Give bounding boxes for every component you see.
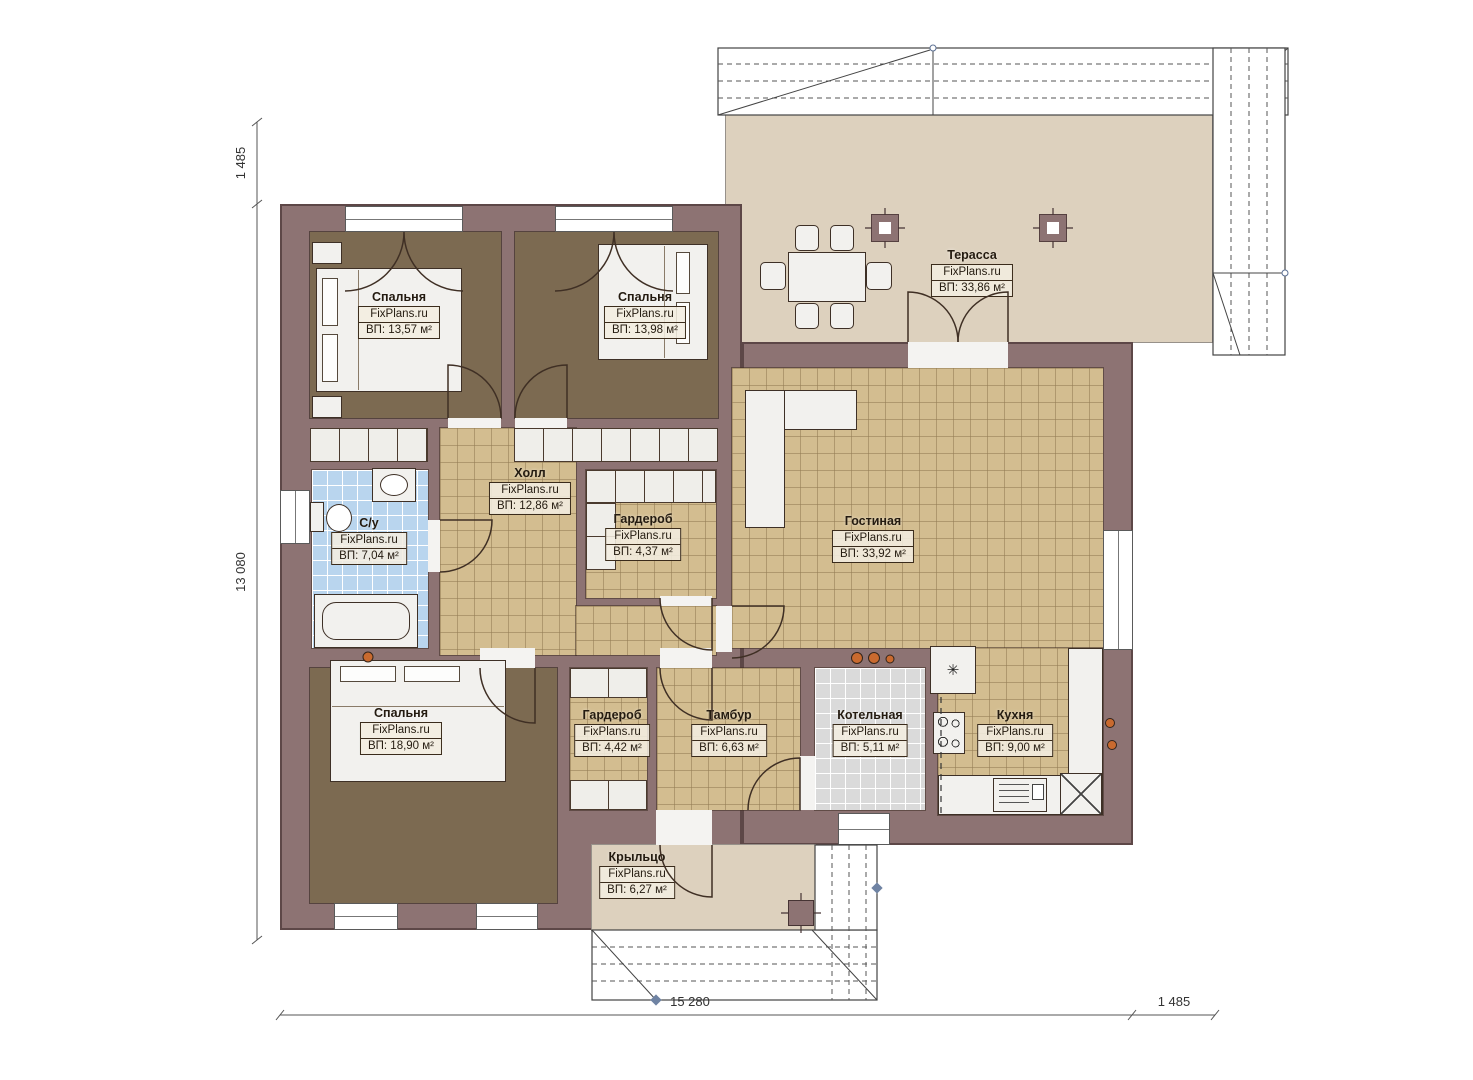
brand-label: FixPlans.ru [361, 723, 441, 739]
brand-label: FixPlans.ru [490, 483, 570, 499]
room-area: ВП: 18,90 м² [361, 739, 441, 754]
chair [795, 303, 819, 329]
roof-node-marker [871, 882, 882, 893]
bed-pillow [676, 252, 690, 294]
window-bedroom-2 [555, 206, 673, 232]
room-info-box: FixPlans.ru ВП: 18,90 м² [360, 722, 442, 755]
room-label-bathroom: С/у FixPlans.ru ВП: 7,04 м² [331, 516, 407, 565]
room-area: ВП: 7,04 м² [332, 549, 406, 564]
closet-bedroom-2 [514, 428, 718, 462]
room-area: ВП: 33,86 м² [932, 281, 1012, 296]
brand-label: FixPlans.ru [332, 533, 406, 549]
brand-label: FixPlans.ru [932, 265, 1012, 281]
window-bathroom [280, 490, 310, 544]
room-label-hall: Холл FixPlans.ru ВП: 12,86 м² [489, 466, 571, 515]
door-opening-wardrobe-1 [660, 596, 712, 606]
room-label-wardrobe-1: Гардероб FixPlans.ru ВП: 4,37 м² [605, 512, 681, 561]
room-name: Спальня [360, 706, 442, 720]
brand-label: FixPlans.ru [575, 725, 649, 741]
roof-node-marker [650, 994, 661, 1005]
room-name: Гардероб [605, 512, 681, 526]
dining-table [788, 252, 866, 302]
room-label-terrace: Терасса FixPlans.ru ВП: 33,86 м² [931, 248, 1013, 297]
brand-label: FixPlans.ru [834, 725, 907, 741]
bed-pillow [340, 666, 396, 682]
room-label-boiler: Котельная FixPlans.ru ВП: 5,11 м² [833, 708, 908, 757]
brand-label: FixPlans.ru [833, 531, 913, 547]
room-info-box: FixPlans.ru ВП: 33,86 м² [931, 264, 1013, 297]
room-name: Спальня [604, 290, 686, 304]
room-info-box: FixPlans.ru ВП: 9,00 м² [977, 724, 1053, 757]
room-info-box: FixPlans.ru ВП: 7,04 м² [331, 532, 407, 565]
room-area: ВП: 5,11 м² [834, 741, 907, 756]
room-info-box: FixPlans.ru ВП: 6,63 м² [691, 724, 767, 757]
dishwasher-panel [1032, 784, 1044, 800]
room-name: Тамбур [691, 708, 767, 722]
chair [866, 262, 892, 290]
room-info-box: FixPlans.ru ВП: 33,92 м² [832, 530, 914, 563]
nightstand [312, 242, 342, 264]
door-opening-living [716, 606, 732, 652]
fridge-glyph: ✳ [947, 661, 960, 679]
porch-post [788, 900, 814, 926]
room-info-box: FixPlans.ru ВП: 4,42 м² [574, 724, 650, 757]
brand-label: FixPlans.ru [605, 307, 685, 323]
terrace-roof-hatch-right [1213, 48, 1288, 355]
brand-label: FixPlans.ru [359, 307, 439, 323]
room-label-tambour: Тамбур FixPlans.ru ВП: 6,63 м² [691, 708, 767, 757]
window-bedroom-3-a [334, 903, 398, 930]
room-name: Кухня [977, 708, 1053, 722]
chair [795, 225, 819, 251]
wardrobe-2-shelves-top [570, 668, 647, 698]
door-opening-bedroom-2 [515, 418, 567, 428]
room-info-box: FixPlans.ru ВП: 13,98 м² [604, 306, 686, 339]
bathtub-inner [322, 602, 410, 640]
brand-label: FixPlans.ru [606, 529, 680, 545]
chair [760, 262, 786, 290]
dim-left: 13 080 [233, 552, 248, 592]
brand-label: FixPlans.ru [692, 725, 766, 741]
room-name: С/у [331, 516, 407, 530]
room-info-box: FixPlans.ru ВП: 5,11 м² [833, 724, 908, 757]
floor-plan: ✳ Спальня FixPlans.ru ВП: 13,57 м² Спаль… [0, 0, 1473, 1080]
room-area: ВП: 6,63 м² [692, 741, 766, 756]
room-name: Гардероб [574, 708, 650, 722]
room-name: Котельная [833, 708, 908, 722]
window-boiler-room [838, 813, 890, 845]
room-area: ВП: 33,92 м² [833, 547, 913, 562]
room-name: Гостиная [832, 514, 914, 528]
dim-bottom: 15 280 [670, 994, 710, 1009]
room-label-porch: Крыльцо FixPlans.ru ВП: 6,27 м² [599, 850, 675, 899]
closet-bedroom-1 [310, 428, 428, 462]
terrace-roof-hatch [718, 45, 1288, 115]
room-label-bedroom-3: Спальня FixPlans.ru ВП: 18,90 м² [360, 706, 442, 755]
room-label-wardrobe-2: Гардероб FixPlans.ru ВП: 4,42 м² [574, 708, 650, 757]
room-area: ВП: 13,98 м² [605, 323, 685, 338]
bed-pillow [322, 278, 338, 326]
room-label-kitchen: Кухня FixPlans.ru ВП: 9,00 м² [977, 708, 1053, 757]
wardrobe-1-shelves-top [586, 470, 716, 503]
hall-floor [440, 428, 576, 655]
bed-pillow [404, 666, 460, 682]
wardrobe-2-shelves-bottom [570, 780, 647, 810]
sofa-corner [745, 390, 785, 528]
room-label-bedroom-2: Спальня FixPlans.ru ВП: 13,98 м² [604, 290, 686, 339]
bed-pillow [322, 334, 338, 382]
brand-label: FixPlans.ru [600, 867, 674, 883]
sink-bowl [380, 474, 408, 496]
room-label-bedroom-1: Спальня FixPlans.ru ВП: 13,57 м² [358, 290, 440, 339]
window-bedroom-3-b [476, 903, 538, 930]
door-opening-porch [656, 810, 712, 845]
chair [830, 225, 854, 251]
room-area: ВП: 12,86 м² [490, 499, 570, 514]
room-area: ВП: 4,37 м² [606, 545, 680, 560]
fridge-icon: ✳ [930, 646, 976, 694]
window-living-room [1103, 530, 1133, 650]
dishwasher-vents [999, 784, 1029, 807]
window-bedroom-1 [345, 206, 463, 232]
toilet-tank [310, 502, 324, 532]
nightstand [312, 396, 342, 418]
room-name: Спальня [358, 290, 440, 304]
terrace-post [872, 215, 898, 241]
room-area: ВП: 9,00 м² [978, 741, 1052, 756]
room-label-living: Гостиная FixPlans.ru ВП: 33,92 м² [832, 514, 914, 563]
room-area: ВП: 13,57 м² [359, 323, 439, 338]
room-info-box: FixPlans.ru ВП: 13,57 м² [358, 306, 440, 339]
terrace-post [1040, 215, 1066, 241]
room-name: Терасса [931, 248, 1013, 262]
terrace-door-opening [908, 342, 1008, 368]
room-name: Крыльцо [599, 850, 675, 864]
corner-cabinet [1060, 773, 1102, 815]
room-info-box: FixPlans.ru ВП: 6,27 м² [599, 866, 675, 899]
door-opening-bathroom [428, 520, 440, 572]
door-opening-bedroom-1 [448, 418, 501, 428]
dim-bottom-right: 1 485 [1158, 994, 1191, 1009]
door-opening-tambour-east [800, 756, 815, 810]
room-info-box: FixPlans.ru ВП: 4,37 м² [605, 528, 681, 561]
stove [933, 712, 965, 754]
room-name: Холл [489, 466, 571, 480]
door-opening-tambour-north [660, 648, 712, 668]
room-info-box: FixPlans.ru ВП: 12,86 м² [489, 482, 571, 515]
chair [830, 303, 854, 329]
room-area: ВП: 4,42 м² [575, 741, 649, 756]
dim-top-left: 1 485 [233, 147, 248, 180]
brand-label: FixPlans.ru [978, 725, 1052, 741]
room-area: ВП: 6,27 м² [600, 883, 674, 898]
